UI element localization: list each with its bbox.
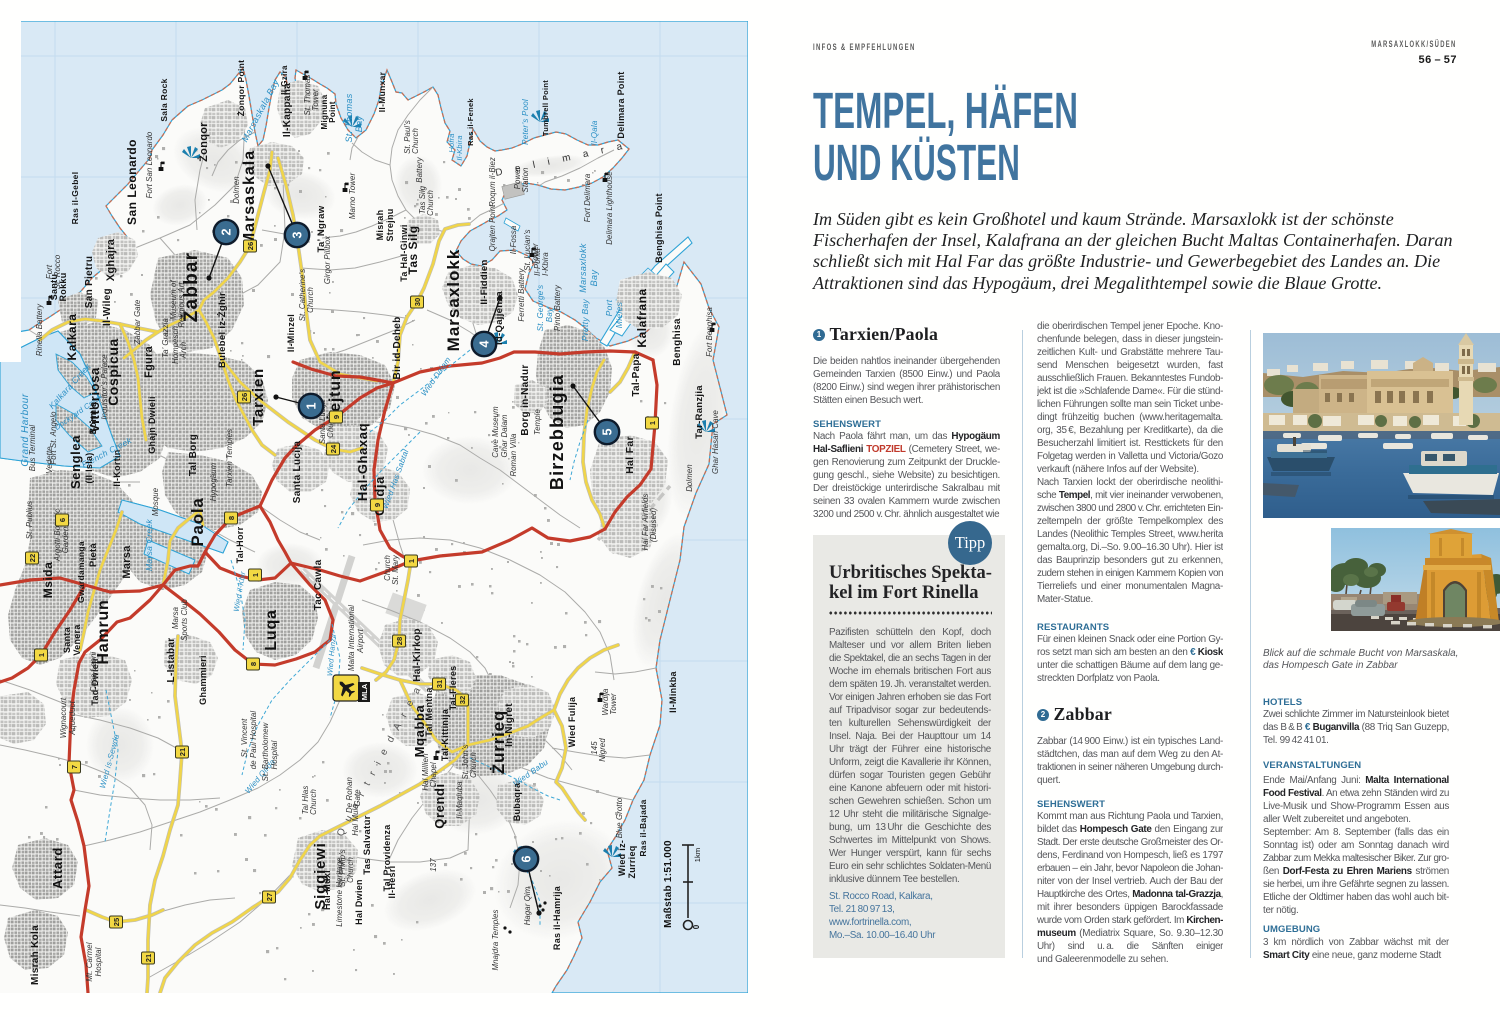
svg-text:Mnajdra Temples: Mnajdra Temples bbox=[491, 909, 500, 970]
svg-text:Hal Dwien: Hal Dwien bbox=[354, 879, 364, 925]
svg-text:Delimara Lighthouse: Delimara Lighthouse bbox=[605, 171, 614, 245]
svg-text:Tal-Kittinija: Tal-Kittinija bbox=[440, 708, 450, 761]
svg-text:26: 26 bbox=[246, 242, 255, 250]
svg-text:27: 27 bbox=[265, 893, 274, 901]
svg-text:Church: Church bbox=[309, 789, 318, 815]
svg-text:Ras il-Bajada: Ras il-Bajada bbox=[638, 799, 648, 856]
svg-text:Ras il-Gebel: Ras il-Gebel bbox=[70, 172, 80, 225]
svg-text:Paola: Paola bbox=[188, 497, 207, 546]
svg-text:Bay: Bay bbox=[589, 270, 599, 287]
svg-text:Pinto Battery: Pinto Battery bbox=[553, 284, 562, 331]
svg-text:Żonqor Point: Żonqor Point bbox=[236, 60, 246, 116]
svg-text:Marsaxlokk: Marsaxlokk bbox=[578, 243, 588, 293]
svg-text:Il-Fossa: Il-Fossa bbox=[509, 225, 518, 254]
svg-text:8: 8 bbox=[249, 662, 258, 666]
svg-text:Hal-Kirkop: Hal-Kirkop bbox=[412, 628, 423, 682]
svg-text:28: 28 bbox=[395, 637, 404, 645]
svg-text:Hospital: Hospital bbox=[94, 947, 103, 976]
svg-text:4: 4 bbox=[477, 340, 491, 347]
svg-text:Birzebbugia: Birzebbugia bbox=[547, 374, 567, 490]
svg-text:5: 5 bbox=[600, 428, 614, 435]
svg-text:Rinella Battery: Rinella Battery bbox=[35, 303, 44, 356]
svg-text:Il-Wileg: Il-Wileg bbox=[102, 288, 113, 326]
svg-text:26: 26 bbox=[240, 393, 249, 401]
svg-text:Pretty Bay: Pretty Bay bbox=[580, 298, 590, 341]
svg-text:Tac Cawla: Tac Cawla bbox=[313, 559, 324, 610]
svg-text:Bormla: Bormla bbox=[88, 401, 98, 435]
svg-text:Tal-Papa: Tal-Papa bbox=[631, 353, 642, 396]
svg-text:Ghar Dalam: Ghar Dalam bbox=[500, 414, 509, 457]
svg-text:21: 21 bbox=[144, 953, 153, 962]
svg-text:21: 21 bbox=[178, 747, 187, 756]
svg-text:Il-Minzel: Il-Minzel bbox=[286, 314, 296, 352]
svg-text:Santa: Santa bbox=[62, 626, 72, 653]
svg-text:Borg in-Nadur: Borg in-Nadur bbox=[520, 364, 531, 435]
svg-text:Peter’s Pool: Peter’s Pool bbox=[521, 99, 530, 145]
svg-text:Żonqor: Żonqor bbox=[197, 122, 210, 162]
svg-text:22: 22 bbox=[28, 554, 37, 562]
svg-text:Cave Museum: Cave Museum bbox=[491, 406, 500, 458]
svg-text:Point: Point bbox=[328, 101, 337, 123]
svg-text:Ferretti Battery: Ferretti Battery bbox=[517, 267, 526, 321]
svg-text:Hal Far: Hal Far bbox=[624, 436, 636, 474]
svg-text:31: 31 bbox=[435, 679, 444, 688]
svg-text:St. Bartholomew: St. Bartholomew bbox=[261, 721, 270, 781]
svg-text:Misrah Kola: Misrah Kola bbox=[30, 925, 41, 985]
svg-text:Church: Church bbox=[411, 128, 420, 154]
svg-text:Nigred: Nigred bbox=[598, 738, 607, 762]
svg-text:Ta Hal-Ginwi: Ta Hal-Ginwi bbox=[399, 224, 409, 281]
svg-text:Marsa: Marsa bbox=[171, 606, 180, 629]
svg-text:Luqa: Luqa bbox=[263, 609, 280, 650]
svg-text:Roqum il-Biez: Roqum il-Biez bbox=[488, 157, 497, 207]
svg-text:Tumbrell Point: Tumbrell Point bbox=[541, 80, 550, 136]
svg-text:Girgor Pillbox: Girgor Pillbox bbox=[323, 235, 332, 284]
svg-text:Blue Grotto: Blue Grotto bbox=[615, 797, 624, 838]
svg-text:30: 30 bbox=[413, 298, 422, 306]
svg-text:Mt. Carmel: Mt. Carmel bbox=[85, 942, 94, 981]
svg-text:St. Vincent: St. Vincent bbox=[240, 718, 249, 757]
svg-text:Gwardamanga: Gwardamanga bbox=[76, 541, 86, 603]
svg-text:Ghammieri: Ghammieri bbox=[198, 655, 208, 705]
svg-text:I-Kbira: I-Kbira bbox=[541, 252, 550, 276]
svg-text:Church: Church bbox=[306, 287, 315, 313]
svg-text:Il-Hesri: Il-Hesri bbox=[387, 866, 397, 899]
svg-text:Strejnu: Strejnu bbox=[385, 208, 395, 241]
svg-text:Church: Church bbox=[346, 857, 355, 883]
svg-text:Il-Qala: Il-Qala bbox=[590, 120, 599, 145]
svg-text:Arch: Arch bbox=[179, 342, 188, 359]
svg-text:8: 8 bbox=[227, 516, 236, 520]
svg-text:Qrendi: Qrendi bbox=[432, 783, 447, 829]
svg-text:St. George's: St. George's bbox=[536, 285, 545, 332]
svg-text:Inquisitor’s Palace: Inquisitor’s Palace bbox=[100, 354, 109, 420]
svg-text:Il-Maqluba: Il-Maqluba bbox=[455, 781, 464, 819]
svg-text:Fort San Leonardo: Fort San Leonardo bbox=[145, 131, 154, 198]
svg-text:Wied Fulija: Wied Fulija bbox=[567, 696, 577, 747]
svg-text:Tal Mentna: Tal Mentna bbox=[424, 687, 434, 737]
svg-text:1km: 1km bbox=[693, 848, 702, 862]
svg-text:Il-Gzira: Il-Gzira bbox=[280, 65, 289, 95]
svg-text:Tower: Tower bbox=[311, 89, 320, 111]
svg-text:Temple: Temple bbox=[533, 408, 542, 434]
svg-text:Hal-Ghaxaq: Hal-Ghaxaq bbox=[355, 423, 370, 501]
svg-text:San Leonardo: San Leonardo bbox=[125, 139, 139, 225]
svg-text:Hagar Qim: Hagar Qim bbox=[523, 886, 532, 925]
svg-text:San Pietru: San Pietru bbox=[84, 256, 95, 308]
svg-text:Hypogäum: Hypogäum bbox=[209, 462, 218, 501]
svg-text:(Disused): (Disused) bbox=[649, 508, 658, 543]
svg-text:Aqueduct: Aqueduct bbox=[68, 700, 77, 735]
svg-text:Marsa Creek: Marsa Creek bbox=[144, 519, 154, 571]
svg-text:Marno Tower: Marno Tower bbox=[348, 173, 357, 220]
svg-text:Fgura: Fgura bbox=[143, 345, 155, 378]
svg-text:3: 3 bbox=[290, 231, 304, 238]
svg-text:Church: Church bbox=[426, 190, 435, 216]
svg-text:Ghajn Dwieli: Ghajn Dwieli bbox=[147, 396, 157, 454]
svg-text:Ta’ Grazzia: Ta’ Grazzia bbox=[161, 318, 170, 358]
svg-text:Religious Art: Religious Art bbox=[177, 282, 186, 328]
svg-text:Tas Salvatur: Tas Salvatur bbox=[362, 815, 373, 874]
svg-text:Attard: Attard bbox=[50, 847, 65, 889]
svg-text:Gardens: Gardens bbox=[61, 523, 70, 554]
svg-text:L-Istabar: L-Istabar bbox=[166, 638, 177, 683]
svg-text:Marsaskala: Marsaskala bbox=[241, 150, 258, 246]
svg-text:Wied iz-: Wied iz- bbox=[617, 840, 627, 876]
svg-text:Il-Kbira: Il-Kbira bbox=[455, 135, 464, 160]
svg-text:Maßstab 1:51.000: Maßstab 1:51.000 bbox=[663, 840, 674, 928]
svg-text:Vedette: Vedette bbox=[45, 446, 54, 474]
svg-text:Tarxien Temples: Tarxien Temples bbox=[225, 429, 234, 487]
svg-text:Tar-Ranzjia: Tar-Ranzjia bbox=[694, 385, 705, 439]
svg-text:6: 6 bbox=[58, 518, 67, 522]
svg-text:Misrah: Misrah bbox=[375, 210, 385, 241]
svg-text:Mosque: Mosque bbox=[151, 487, 160, 516]
svg-text:Bay: Bay bbox=[354, 116, 364, 133]
svg-text:Port: Port bbox=[604, 299, 614, 316]
svg-text:Church: Church bbox=[469, 752, 478, 778]
svg-text:Xghajra: Xghajra bbox=[105, 238, 117, 281]
svg-text:St. Publius: St. Publius bbox=[25, 501, 34, 539]
svg-text:Tower: Tower bbox=[609, 693, 618, 715]
svg-text:Il-Minkba: Il-Minkba bbox=[668, 670, 678, 712]
svg-text:32: 32 bbox=[458, 696, 467, 704]
svg-text:Dolmen: Dolmen bbox=[232, 176, 241, 203]
svg-text:Il-Munxar: Il-Munxar bbox=[377, 71, 387, 112]
svg-text:Bir id-Deheb: Bir id-Deheb bbox=[392, 316, 403, 379]
svg-text:In-Nigret: In-Nigret bbox=[504, 703, 515, 747]
svg-text:Zurrieq: Zurrieq bbox=[627, 845, 637, 878]
svg-text:Dolmen: Dolmen bbox=[685, 464, 694, 491]
svg-text:St. Rocco: St. Rocco bbox=[53, 254, 62, 289]
svg-text:Msida: Msida bbox=[41, 562, 55, 599]
svg-text:MLA: MLA bbox=[360, 683, 369, 700]
svg-text:Tal Borg: Tal Borg bbox=[188, 434, 199, 476]
svg-text:Senglea: Senglea bbox=[68, 435, 83, 489]
svg-text:Benghisa: Benghisa bbox=[672, 318, 683, 366]
svg-text:9: 9 bbox=[332, 415, 341, 419]
svg-text:Marsa: Marsa bbox=[121, 545, 133, 579]
svg-text:Battery: Battery bbox=[415, 156, 424, 182]
svg-text:Airport: Airport bbox=[356, 628, 365, 653]
svg-text:Hal-Muxi: Hal-Muxi bbox=[322, 870, 332, 910]
svg-text:Sports Club: Sports Club bbox=[180, 599, 189, 641]
svg-text:Casa Leoni: Casa Leoni bbox=[89, 652, 98, 693]
svg-text:Delimara Point: Delimara Point bbox=[616, 71, 626, 138]
svg-text:Sala Rock: Sala Rock bbox=[159, 78, 169, 121]
svg-text:Fort Delimara: Fort Delimara bbox=[583, 173, 592, 222]
svg-text:0: 0 bbox=[692, 924, 701, 929]
svg-text:9: 9 bbox=[373, 503, 382, 507]
svg-text:Roman Villa: Roman Villa bbox=[509, 433, 518, 477]
svg-text:Il-Fiddien: Il-Fiddien bbox=[479, 259, 490, 304]
svg-text:St. Thomas: St. Thomas bbox=[344, 93, 354, 142]
svg-text:Zabbar Gate: Zabbar Gate bbox=[133, 299, 142, 345]
svg-text:Santa Lucija: Santa Lucija bbox=[292, 441, 303, 504]
svg-text:Il-Kortin: Il-Kortin bbox=[112, 449, 122, 486]
svg-text:Kalafrana: Kalafrana bbox=[635, 288, 649, 347]
svg-text:(Il Isla): (Il Isla) bbox=[84, 452, 94, 483]
svg-text:25: 25 bbox=[112, 917, 121, 926]
svg-text:Pietà: Pietà bbox=[88, 542, 99, 567]
svg-text:1: 1 bbox=[304, 402, 318, 409]
svg-text:6: 6 bbox=[519, 855, 533, 862]
svg-text:137: 137 bbox=[429, 858, 438, 872]
svg-text:2: 2 bbox=[219, 228, 233, 235]
svg-text:Ras il-Hamrija: Ras il-Hamrija bbox=[552, 885, 562, 950]
svg-text:Venera: Venera bbox=[72, 624, 82, 656]
svg-text:Bus Terminal: Bus Terminal bbox=[28, 425, 37, 472]
svg-text:Limestone Heritage: Limestone Heritage bbox=[335, 857, 344, 927]
svg-text:Benghisa Point: Benghisa Point bbox=[654, 193, 664, 263]
svg-text:Malta International: Malta International bbox=[347, 605, 356, 671]
svg-text:Tarxien: Tarxien bbox=[250, 368, 267, 426]
svg-text:Mieles: Mieles bbox=[614, 301, 624, 328]
svg-text:Ras il-Fenek: Ras il-Fenek bbox=[466, 98, 475, 146]
svg-text:Bulebel iz-Żghir: Bulebel iz-Żghir bbox=[217, 292, 228, 368]
svg-text:Kalkara: Kalkara bbox=[65, 314, 79, 361]
svg-text:24: 24 bbox=[329, 444, 338, 453]
svg-text:Tal-Horr: Tal-Horr bbox=[235, 526, 245, 563]
svg-text:Ghar Hasan Cave: Ghar Hasan Cave bbox=[711, 409, 720, 473]
svg-text:7: 7 bbox=[70, 765, 79, 769]
svg-text:Fort Benghisa: Fort Benghisa bbox=[705, 307, 714, 357]
svg-text:Wignacourt: Wignacourt bbox=[59, 697, 68, 738]
svg-text:de Paul Hospital: de Paul Hospital bbox=[249, 711, 258, 770]
svg-text:Bubaqra: Bubaqra bbox=[512, 782, 522, 821]
svg-text:Qrajten Point: Qrajten Point bbox=[488, 204, 497, 252]
svg-text:Chapel: Chapel bbox=[429, 762, 438, 787]
svg-text:Hospital: Hospital bbox=[270, 740, 279, 769]
svg-text:St. Mary: St. Mary bbox=[391, 554, 400, 585]
svg-text:Marsaxlokk: Marsaxlokk bbox=[444, 249, 463, 352]
